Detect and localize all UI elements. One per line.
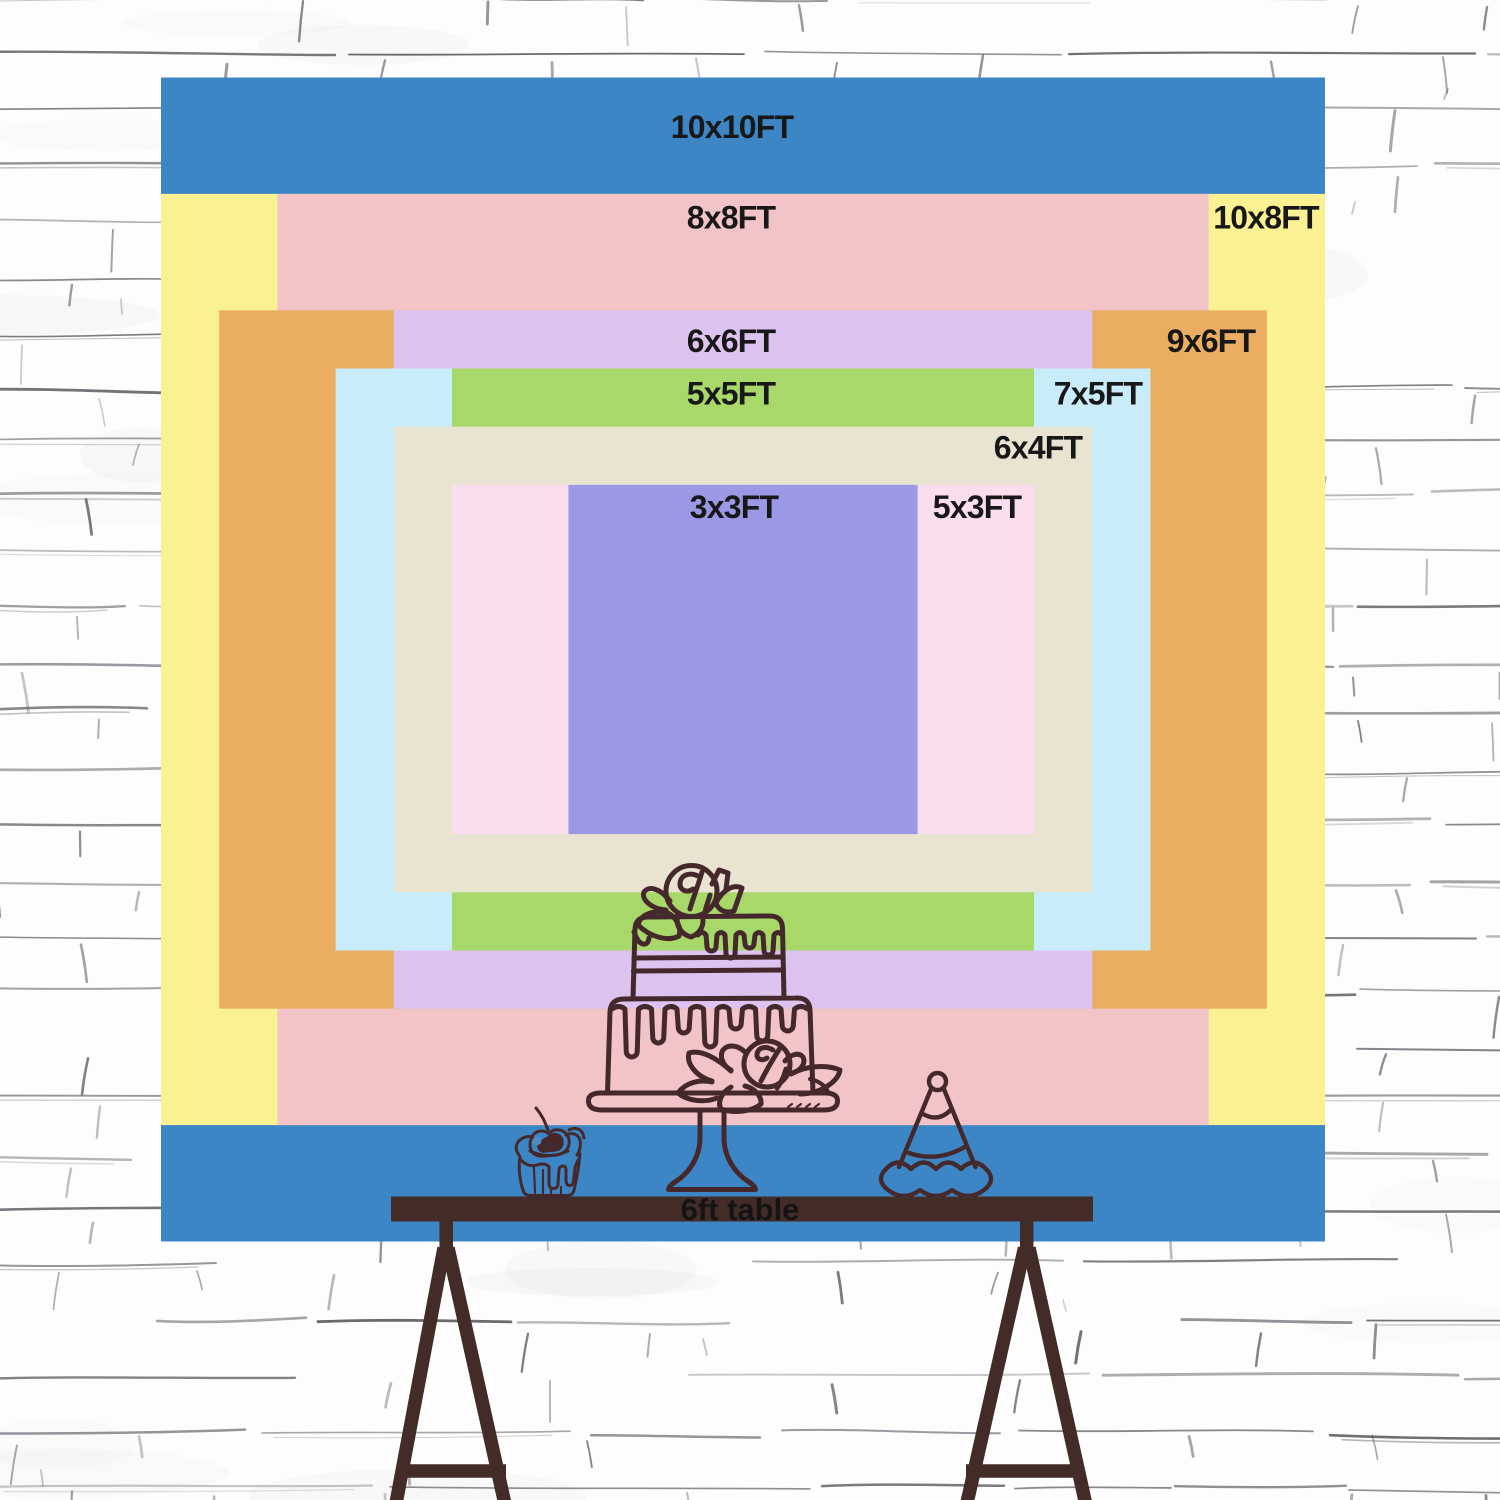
svg-text:9x6FT: 9x6FT [1167, 323, 1257, 359]
svg-text:8x8FT: 8x8FT [687, 200, 777, 236]
svg-text:5x3FT: 5x3FT [933, 489, 1023, 525]
svg-text:6ft table: 6ft table [681, 1192, 800, 1227]
svg-text:10x10FT: 10x10FT [671, 109, 795, 145]
svg-text:10x8FT: 10x8FT [1213, 200, 1320, 236]
svg-text:6x4FT: 6x4FT [994, 430, 1084, 466]
svg-text:7x5FT: 7x5FT [1054, 376, 1144, 412]
svg-text:6x6FT: 6x6FT [687, 323, 777, 359]
svg-text:5x5FT: 5x5FT [687, 376, 777, 412]
svg-text:3x3FT: 3x3FT [690, 489, 780, 525]
